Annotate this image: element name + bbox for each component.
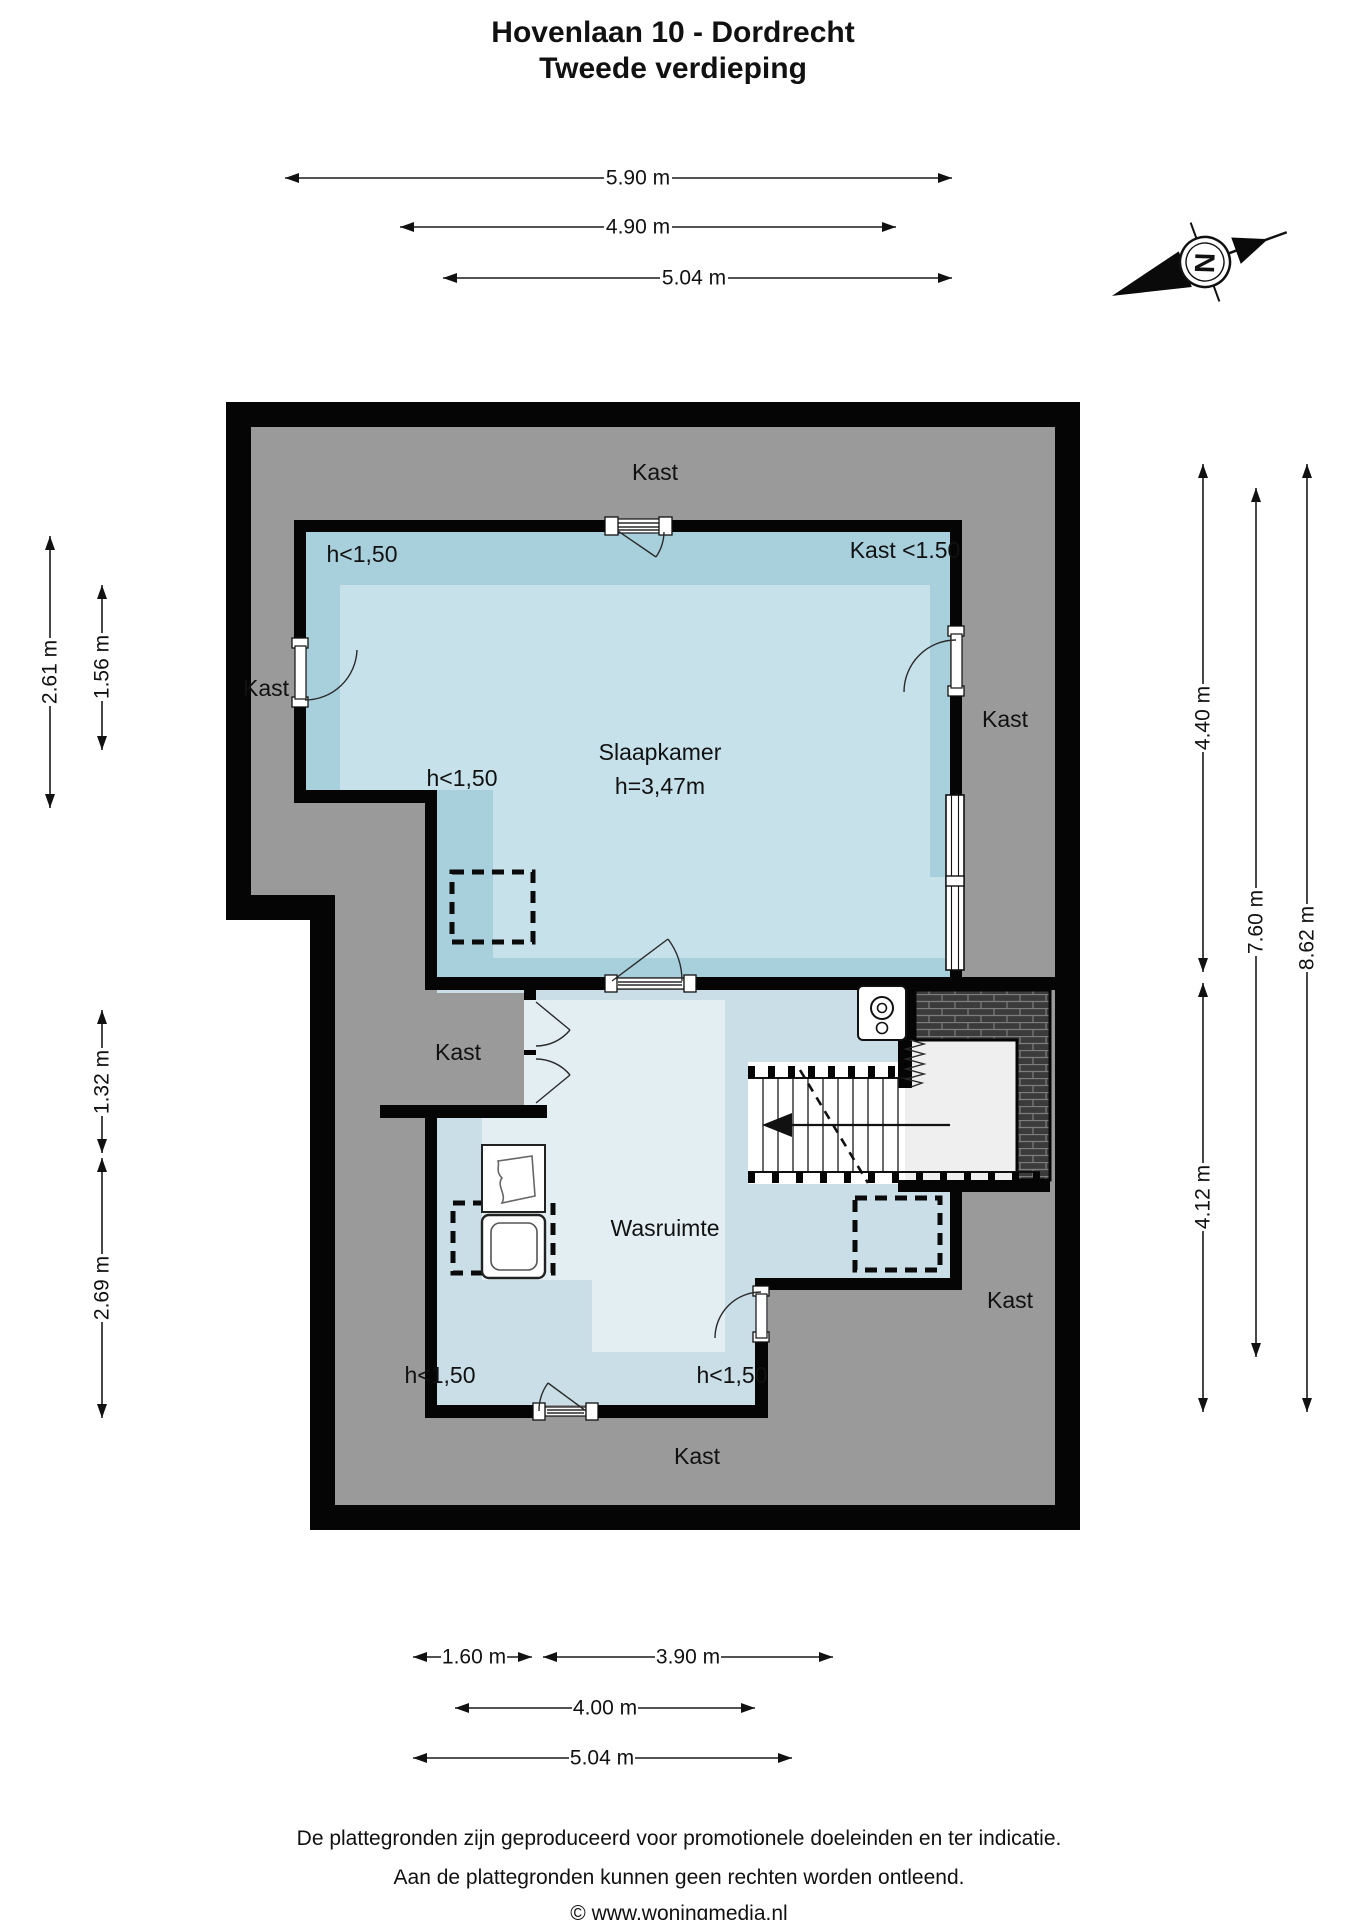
svg-text:1.32 m: 1.32 m bbox=[91, 1050, 114, 1114]
footer-copyright: © www.woningmedia.nl bbox=[570, 1902, 787, 1920]
floorplan-svg: Hovenlaan 10 - Dordrecht Tweede verdiepi… bbox=[0, 0, 1358, 1920]
label-slaapkamer-height: h=3,47m bbox=[615, 773, 705, 799]
svg-text:4.90 m: 4.90 m bbox=[606, 216, 670, 239]
label-wasruimte: Wasruimte bbox=[610, 1215, 719, 1241]
label-kast-east: Kast bbox=[982, 706, 1029, 732]
label-h150-bottomright: h<1,50 bbox=[697, 1362, 768, 1388]
svg-text:5.04 m: 5.04 m bbox=[570, 1747, 634, 1770]
svg-text:5.90 m: 5.90 m bbox=[606, 167, 670, 190]
floorplan-page: Hovenlaan 10 - Dordrecht Tweede verdiepi… bbox=[0, 0, 1358, 1920]
dim-top-490: 4.90 m bbox=[400, 215, 896, 239]
label-kast-southeast: Kast bbox=[987, 1287, 1034, 1313]
dim-right-862: 8.62 m bbox=[1296, 464, 1319, 1412]
footer-disclaimer-line1: De plattegronden zijn geproduceerd voor … bbox=[297, 1827, 1062, 1850]
dim-left-269: 2.69 m bbox=[91, 1158, 114, 1418]
label-h150-midleft: h<1,50 bbox=[427, 765, 498, 791]
dim-right-760: 7.60 m bbox=[1245, 488, 1268, 1357]
stair-landing bbox=[905, 1038, 1017, 1185]
svg-text:4.12 m: 4.12 m bbox=[1192, 1165, 1215, 1229]
svg-text:4.40 m: 4.40 m bbox=[1192, 686, 1215, 750]
boiler-icon bbox=[858, 986, 906, 1040]
dim-left-261: 2.61 m bbox=[39, 536, 62, 808]
dim-top-504: 5.04 m bbox=[443, 266, 952, 290]
svg-text:2.69 m: 2.69 m bbox=[91, 1256, 114, 1320]
label-kast-lt150: Kast <1.50 bbox=[850, 537, 961, 563]
label-h150-bottomleft: h<1,50 bbox=[405, 1362, 476, 1388]
dim-bottom-160: 1.60 m bbox=[413, 1645, 532, 1669]
sink-unit bbox=[482, 1145, 545, 1212]
page-subtitle: Tweede verdieping bbox=[539, 52, 807, 85]
footer-disclaimer-line2: Aan de plattegronden kunnen geen rechten… bbox=[394, 1866, 965, 1889]
dim-right-412: 4.12 m bbox=[1192, 983, 1215, 1412]
dim-left-132: 1.32 m bbox=[91, 1010, 114, 1153]
label-kast-west: Kast bbox=[243, 675, 290, 701]
svg-text:1.56 m: 1.56 m bbox=[91, 635, 114, 699]
svg-text:8.62 m: 8.62 m bbox=[1296, 906, 1319, 970]
dim-bottom-400: 4.00 m bbox=[455, 1696, 755, 1720]
plan: Kast h<1,50 Kast <1.50 Kast Kast Slaapka… bbox=[226, 402, 1080, 1530]
dim-top-590: 5.90 m bbox=[285, 166, 952, 190]
label-kast-middle: Kast bbox=[435, 1039, 482, 1065]
window-east bbox=[946, 795, 964, 970]
page-title: Hovenlaan 10 - Dordrecht bbox=[491, 16, 854, 49]
laundry-appliances bbox=[482, 1145, 545, 1278]
svg-text:2.61 m: 2.61 m bbox=[39, 640, 62, 704]
svg-text:5.04 m: 5.04 m bbox=[662, 267, 726, 290]
label-h150-topleft: h<1,50 bbox=[327, 541, 398, 567]
label-kast-bottom: Kast bbox=[674, 1443, 721, 1469]
label-kast-top: Kast bbox=[632, 459, 679, 485]
label-slaapkamer: Slaapkamer bbox=[599, 739, 722, 765]
svg-text:7.60 m: 7.60 m bbox=[1245, 890, 1268, 954]
dim-left-156: 1.56 m bbox=[91, 585, 114, 750]
svg-text:4.00 m: 4.00 m bbox=[573, 1697, 637, 1720]
svg-text:3.90 m: 3.90 m bbox=[656, 1646, 720, 1669]
dim-right-440: 4.40 m bbox=[1192, 464, 1215, 972]
compass-north-letter: N bbox=[1189, 252, 1221, 273]
north-compass-icon: N bbox=[1098, 193, 1302, 336]
dim-bottom-390: 3.90 m bbox=[543, 1645, 833, 1669]
svg-text:1.60 m: 1.60 m bbox=[442, 1646, 506, 1669]
kast-middle-area bbox=[337, 993, 524, 1105]
dim-bottom-504: 5.04 m bbox=[413, 1746, 792, 1770]
